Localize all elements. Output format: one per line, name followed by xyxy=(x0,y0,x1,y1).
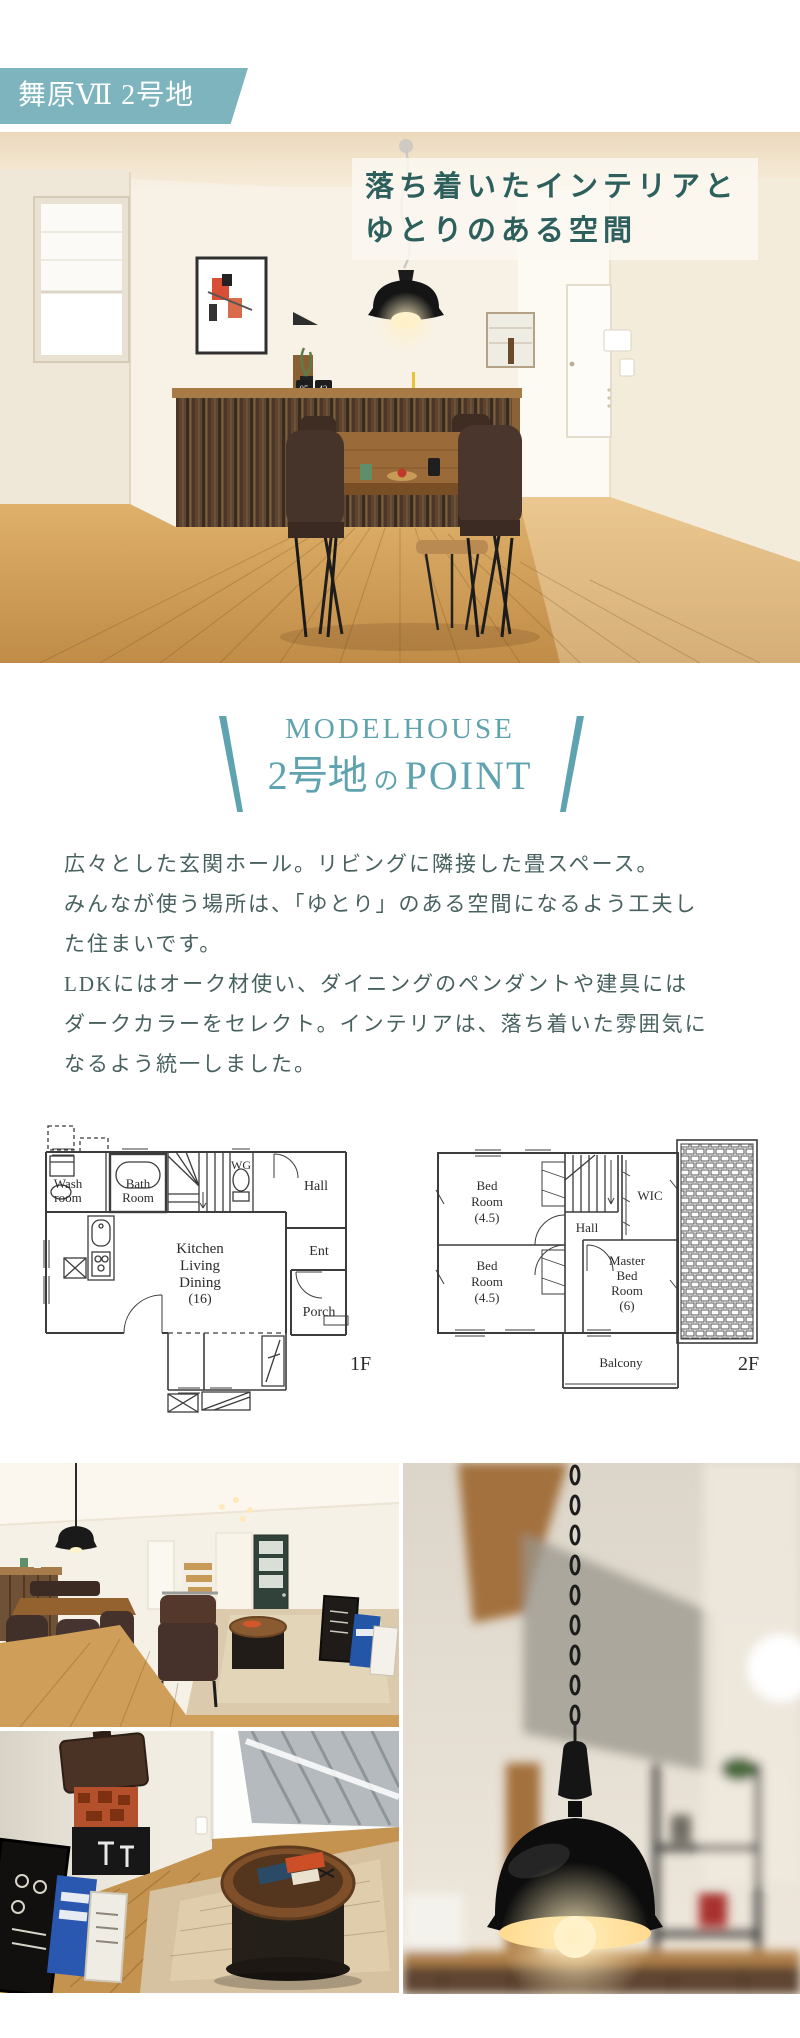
white-door xyxy=(567,285,611,437)
door-arc xyxy=(124,1295,162,1333)
green-cup xyxy=(360,464,372,480)
socket-bell xyxy=(558,1741,592,1800)
room-label-porch: Porch xyxy=(303,1305,336,1320)
toilet xyxy=(233,1169,249,1201)
left-window xyxy=(34,197,129,362)
room-label-master: MasterBedRoom(6) xyxy=(609,1253,646,1313)
laundry-dashed-box xyxy=(80,1138,108,1152)
point-word: POINT xyxy=(405,753,533,798)
window-marks xyxy=(436,1150,678,1336)
lot-badge-label: 舞原Ⅶ 2号地 xyxy=(18,80,194,111)
point-title: 2号地のPOINT xyxy=(0,752,800,809)
floorplan-2f: BedRoom(4.5) BedRoom(4.5) Hall WIC Maste… xyxy=(435,1120,780,1400)
photo-pendant-closeup xyxy=(403,1463,800,1994)
photo-coffee-table xyxy=(0,1731,399,1993)
room-label-ldk: KitchenLivingDining(16) xyxy=(176,1241,224,1307)
point-particle: の xyxy=(374,768,399,795)
room-label-ent: Ent xyxy=(309,1244,329,1259)
door-arc xyxy=(296,1272,322,1298)
description-line: ダークカラーをセレクト。インテリアは、落ち着いた雰囲気に xyxy=(64,1004,764,1044)
plate xyxy=(398,469,407,478)
room-label-hall: Hall xyxy=(304,1179,328,1194)
white-sign xyxy=(85,1892,127,1982)
laundry-dashed-box xyxy=(48,1126,74,1150)
round-coffee-table xyxy=(230,1617,286,1669)
description-line: 広々とした玄関ホール。リビングに隣接した畳スペース。 xyxy=(64,844,764,884)
green-cup xyxy=(20,1558,28,1567)
black-tumbler xyxy=(428,458,440,476)
point-lot: 2号地 xyxy=(268,753,368,798)
window-deck xyxy=(212,1731,399,1841)
light-switch xyxy=(196,1817,207,1834)
2f-outline xyxy=(438,1153,678,1333)
red-container xyxy=(699,1893,727,1927)
stairs xyxy=(565,1155,614,1212)
window-blind xyxy=(41,204,122,292)
room-label-hall-2f: Hall xyxy=(576,1220,599,1235)
round-tray-table xyxy=(214,1847,362,1990)
hero-title-line2: ゆとりのある空間 xyxy=(365,209,758,253)
room-label-bathroom: BathRoom xyxy=(122,1176,154,1205)
white-cup xyxy=(34,1560,41,1568)
description: 広々とした玄関ホール。リビングに隣接した畳スペース。 みんなが使う場所は、「ゆと… xyxy=(64,844,764,1084)
closet xyxy=(542,1250,565,1294)
hero-title-overlay: 落ち着いたインテリアと ゆとりのある空間 xyxy=(352,158,758,260)
description-line: なるよう統一しました。 xyxy=(64,1044,764,1084)
tray-items xyxy=(243,1621,261,1628)
description-line: みんなが使う場所は、「ゆとり」のある空間になるよう工夫し xyxy=(64,884,764,924)
room-label-washroom: Washroom xyxy=(54,1176,83,1205)
page: 舞原Ⅶ 2号地 xyxy=(0,0,800,2038)
point-heading: MODELHOUSE 2号地のPOINT xyxy=(0,712,800,809)
room-label-wic: WIC xyxy=(637,1188,662,1203)
floor-tag-2f: 2F xyxy=(738,1353,759,1375)
plant xyxy=(721,1757,757,1781)
hero-title-line1: 落ち着いたインテリアと xyxy=(365,165,758,209)
stairs xyxy=(168,1152,223,1212)
wic-hanger-pipe xyxy=(623,1160,630,1235)
room-label-bedroom2: BedRoom(4.5) xyxy=(471,1258,503,1305)
room-label-balcony: Balcony xyxy=(599,1355,643,1370)
sliding-door xyxy=(216,1533,252,1613)
description-line: LDKにはオーク材使い、ダイニングのペンダントや建具には xyxy=(64,964,764,1004)
floorplan-1f: Washroom BathRoom WG Hall KitchenLivingD… xyxy=(28,1120,373,1420)
white-sign xyxy=(370,1626,398,1676)
lot-badge: 舞原Ⅶ 2号地 xyxy=(0,68,248,124)
room-label-wg: WG xyxy=(231,1158,251,1172)
floor-tag-1f: 1F xyxy=(350,1353,371,1375)
door-arc xyxy=(274,1154,298,1178)
intercom-panel xyxy=(604,330,631,351)
black-box xyxy=(72,1827,150,1875)
kitchen-counter xyxy=(88,1216,114,1280)
photo-living-room xyxy=(0,1463,399,1727)
closet xyxy=(542,1162,565,1206)
art-frame xyxy=(197,258,266,353)
description-line: た住まいです。 xyxy=(64,924,764,964)
vintage-suitcase xyxy=(60,1733,149,1793)
point-eyebrow: MODELHOUSE xyxy=(0,712,800,746)
room-label-bedroom1: BedRoom(4.5) xyxy=(471,1178,503,1225)
wall-panel xyxy=(620,359,634,376)
